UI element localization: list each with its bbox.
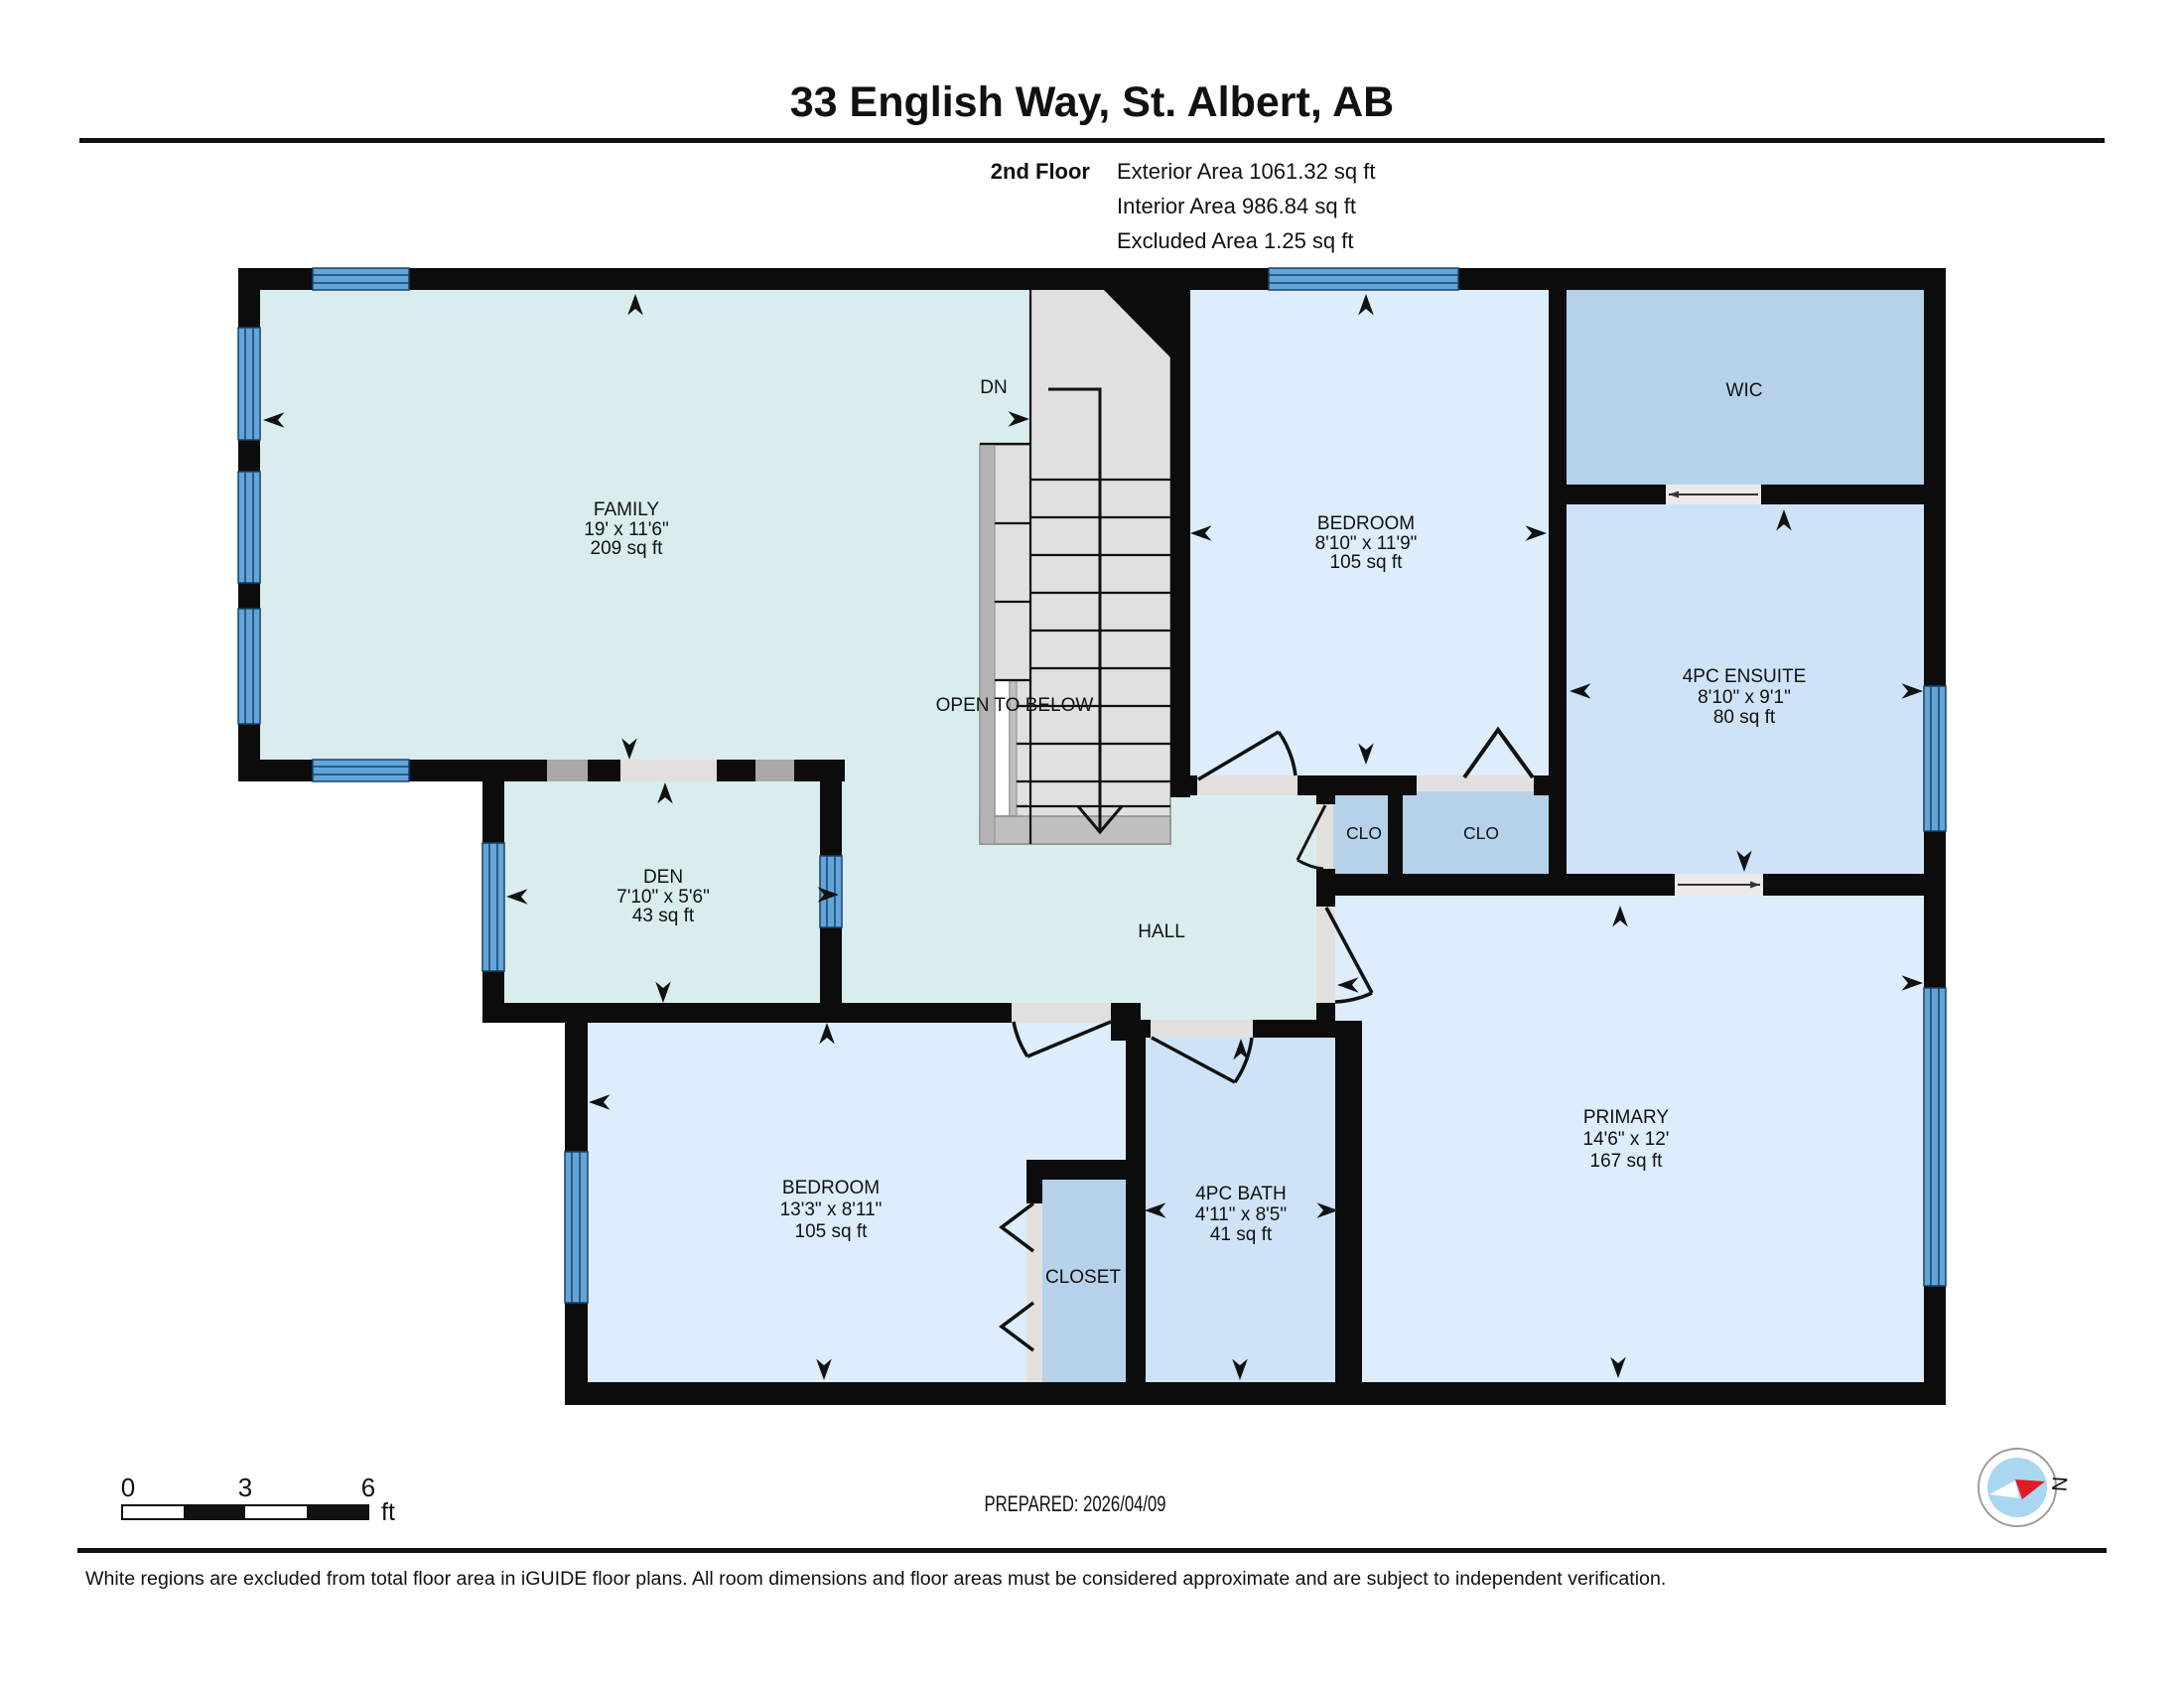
svg-text:CLO: CLO — [1346, 823, 1382, 843]
svg-text:0: 0 — [121, 1473, 135, 1502]
svg-text:13'3" x 8'11": 13'3" x 8'11" — [780, 1199, 883, 1220]
svg-text:HALL: HALL — [1138, 921, 1185, 942]
svg-text:PREPARED: 2026/04/09: PREPARED: 2026/04/09 — [985, 1491, 1166, 1516]
svg-text:43 sq ft: 43 sq ft — [632, 906, 695, 926]
svg-text:N: N — [2047, 1476, 2071, 1492]
svg-text:Exterior Area 1061.32 sq ft: Exterior Area 1061.32 sq ft — [1117, 159, 1376, 184]
svg-text:DEN: DEN — [643, 867, 683, 888]
svg-text:2nd Floor: 2nd Floor — [991, 159, 1091, 184]
svg-text:105 sq ft: 105 sq ft — [795, 1221, 869, 1242]
svg-text:8'10" x 9'1": 8'10" x 9'1" — [1698, 687, 1791, 708]
svg-text:4PC ENSUITE: 4PC ENSUITE — [1683, 666, 1807, 687]
svg-text:PRIMARY: PRIMARY — [1583, 1107, 1670, 1128]
svg-text:FAMILY: FAMILY — [594, 499, 659, 520]
svg-text:CLO: CLO — [1463, 823, 1499, 843]
svg-text:6: 6 — [361, 1473, 375, 1502]
svg-text:BEDROOM: BEDROOM — [782, 1178, 880, 1198]
svg-text:8'10" x 11'9": 8'10" x 11'9" — [1315, 533, 1418, 554]
svg-text:4'11" x 8'5": 4'11" x 8'5" — [1195, 1204, 1287, 1225]
svg-text:209 sq ft: 209 sq ft — [591, 538, 664, 559]
svg-text:Excluded Area 1.25 sq ft: Excluded Area 1.25 sq ft — [1117, 228, 1354, 253]
svg-text:DN: DN — [980, 377, 1007, 398]
svg-text:33 English Way, St. Albert, AB: 33 English Way, St. Albert, AB — [790, 78, 1394, 126]
svg-text:ft: ft — [381, 1498, 395, 1526]
svg-text:CLOSET: CLOSET — [1045, 1267, 1121, 1288]
svg-text:3: 3 — [238, 1473, 252, 1502]
svg-text:19' x 11'6": 19' x 11'6" — [584, 519, 668, 540]
svg-text:41 sq ft: 41 sq ft — [1210, 1224, 1273, 1245]
svg-text:Interior Area 986.84 sq ft: Interior Area 986.84 sq ft — [1117, 194, 1356, 218]
svg-text:WIC: WIC — [1726, 380, 1763, 401]
svg-text:White regions are excluded fro: White regions are excluded from total fl… — [85, 1568, 1666, 1590]
svg-text:4PC BATH: 4PC BATH — [1195, 1184, 1287, 1204]
svg-text:80 sq ft: 80 sq ft — [1713, 707, 1776, 728]
svg-text:OPEN TO BELOW: OPEN TO BELOW — [936, 695, 1094, 716]
svg-text:BEDROOM: BEDROOM — [1317, 513, 1415, 534]
svg-text:167 sq ft: 167 sq ft — [1590, 1151, 1664, 1172]
svg-text:105 sq ft: 105 sq ft — [1330, 552, 1404, 573]
svg-text:14'6" x 12': 14'6" x 12' — [1583, 1129, 1670, 1150]
svg-text:7'10" x 5'6": 7'10" x 5'6" — [616, 887, 710, 908]
